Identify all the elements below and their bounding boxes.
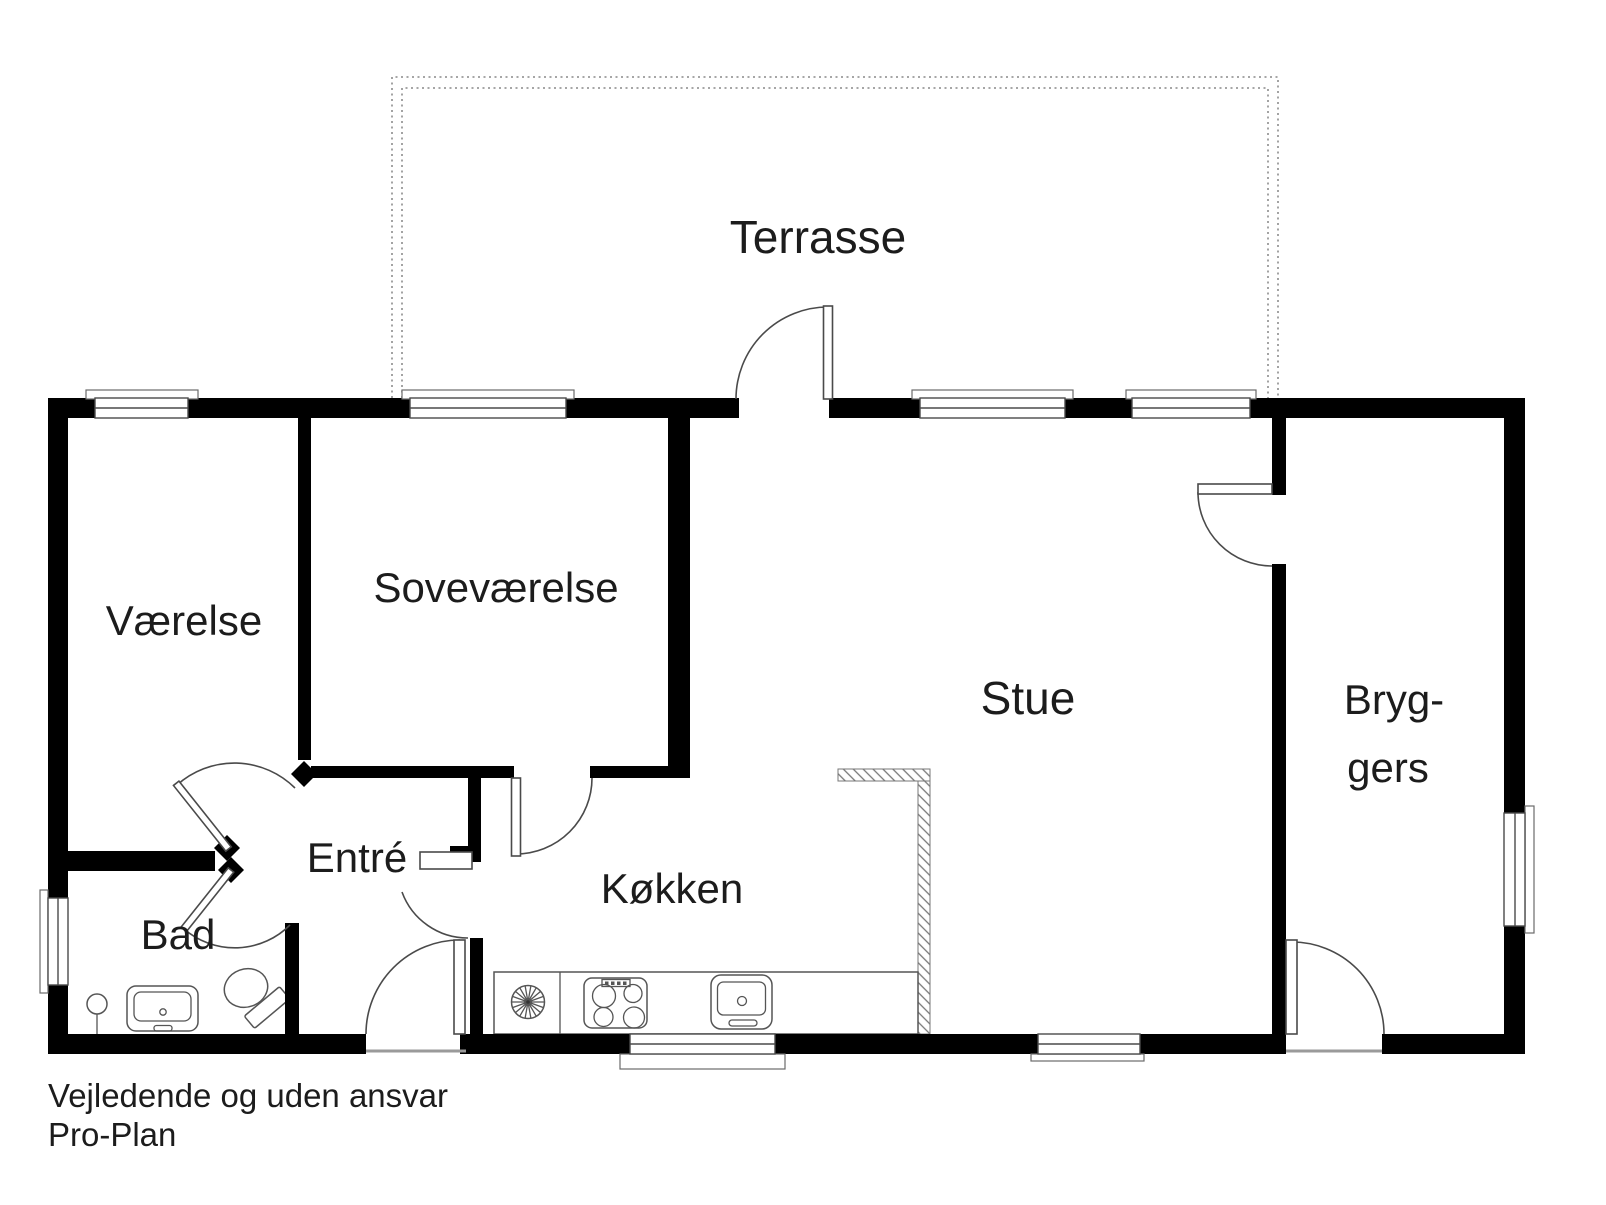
terrace-door (736, 306, 833, 399)
footer: Vejledende og uden ansvar Pro-Plan (48, 1077, 448, 1153)
interior-walls (68, 418, 1286, 1034)
stove-symbol (584, 978, 647, 1028)
room-label-terrasse: Terrasse (730, 211, 906, 263)
koekken-door (402, 892, 468, 938)
bryggers-exterior-door (1286, 940, 1384, 1051)
window-stue-top-right (1126, 390, 1256, 418)
floor-plan-page: Terrasse Værelse Soveværelse Stue Bryg- … (0, 0, 1606, 1205)
kitchen-counter (494, 972, 918, 1034)
vaerelse-door (173, 763, 295, 851)
window-stue-top-left (912, 390, 1073, 418)
room-label-bryggers-line1: Bryg- (1344, 676, 1444, 723)
room-label-vaerelse: Værelse (106, 597, 262, 644)
room-label-bryggers-line2: gers (1347, 744, 1429, 791)
washbasin-symbol (127, 986, 198, 1031)
window-stue-bottom (1031, 1034, 1144, 1061)
windows (40, 390, 1534, 1069)
credit-text: Pro-Plan (48, 1116, 176, 1153)
kitchen-sink-symbol (711, 975, 772, 1029)
toilet-brush-symbol (87, 994, 107, 1036)
room-label-koekken: Køkken (601, 865, 743, 912)
window-bad-left (40, 890, 68, 993)
floor-plan-drawing: Terrasse Værelse Soveværelse Stue Bryg- … (0, 0, 1606, 1205)
room-label-stue: Stue (981, 672, 1076, 724)
window-sovevaerelse-top (402, 390, 574, 418)
toilet-symbol (219, 963, 290, 1029)
kitchen-fixtures (494, 972, 918, 1034)
bathroom-fixtures (87, 963, 290, 1036)
room-label-entre: Entré (307, 834, 407, 881)
room-label-sovevaerelse: Soveværelse (373, 564, 618, 611)
disclaimer-text: Vejledende og uden ansvar (48, 1077, 448, 1114)
window-bryggers-right (1504, 806, 1534, 933)
sovevaerelse-door (512, 778, 593, 856)
window-vaerelse-top (86, 390, 198, 418)
stue-bryggers-door (1198, 484, 1272, 566)
extractor-fan-symbol (512, 986, 545, 1019)
room-label-bad: Bad (141, 911, 216, 958)
entre-koekken-opening (420, 852, 472, 869)
exterior-walls (48, 398, 1525, 1054)
entrance-door (366, 940, 466, 1051)
window-koekken-bottom (620, 1034, 785, 1069)
